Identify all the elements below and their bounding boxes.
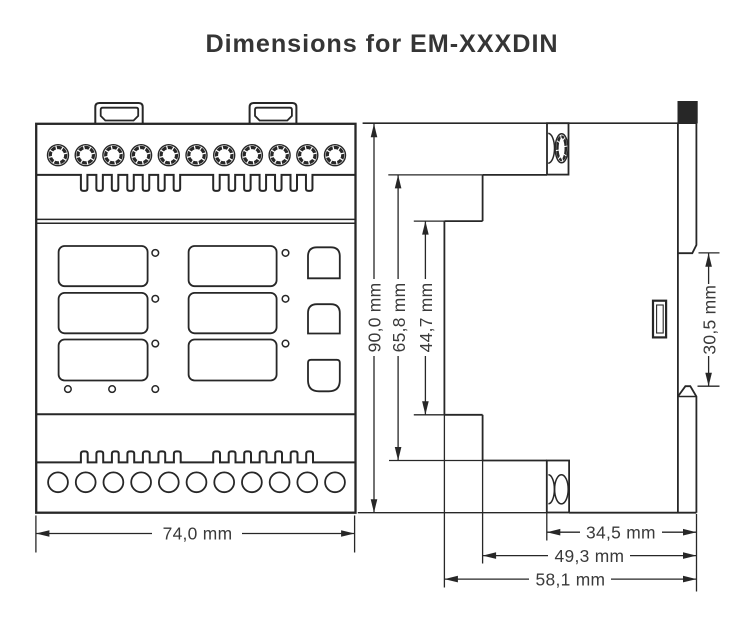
svg-text:58,1 mm: 58,1 mm [536,569,606,589]
svg-text:74,0 mm: 74,0 mm [163,524,233,544]
svg-text:44,7 mm: 44,7 mm [416,283,436,353]
svg-text:90,0 mm: 90,0 mm [365,283,385,353]
svg-text:34,5 mm: 34,5 mm [586,522,656,542]
svg-text:Dimensions for EM-XXXDIN: Dimensions for EM-XXXDIN [205,30,558,58]
svg-text:30,5 mm: 30,5 mm [699,285,719,355]
svg-text:65,8 mm: 65,8 mm [389,283,409,353]
svg-text:49,3 mm: 49,3 mm [555,546,625,566]
